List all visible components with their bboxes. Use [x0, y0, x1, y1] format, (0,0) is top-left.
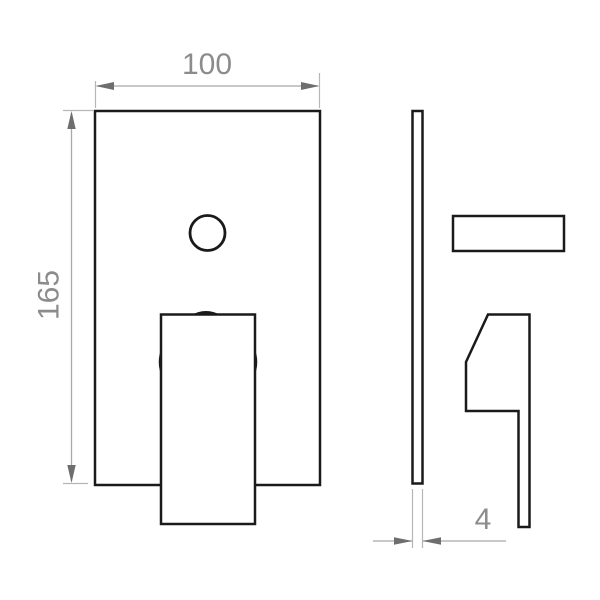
- width-arrow-left: [96, 82, 115, 90]
- dimension-plate-thickness: 4: [373, 489, 506, 548]
- height-dimension-label: 165: [33, 270, 66, 320]
- dimension-plate-height: 165: [33, 111, 94, 484]
- dimension-plate-width: 100: [96, 48, 320, 108]
- thickness-dimension-label: 4: [475, 503, 492, 536]
- diverter-knob-side-profile: [453, 216, 564, 251]
- side-view: [413, 111, 565, 527]
- height-arrow-top: [67, 111, 75, 129]
- thickness-arrow-right: [423, 537, 442, 544]
- wall-plate-side-profile: [413, 111, 423, 484]
- width-arrow-right: [301, 82, 320, 90]
- drawing-svg: 100 165 4: [0, 0, 600, 600]
- technical-drawing-canvas: 100 165 4: [0, 0, 600, 600]
- front-view: [95, 111, 320, 524]
- width-dimension-label: 100: [182, 48, 232, 81]
- height-arrow-bottom: [67, 465, 75, 483]
- lever-handle-front: [161, 315, 255, 525]
- thickness-arrow-left: [394, 537, 413, 544]
- lever-handle-side-profile: [466, 315, 530, 528]
